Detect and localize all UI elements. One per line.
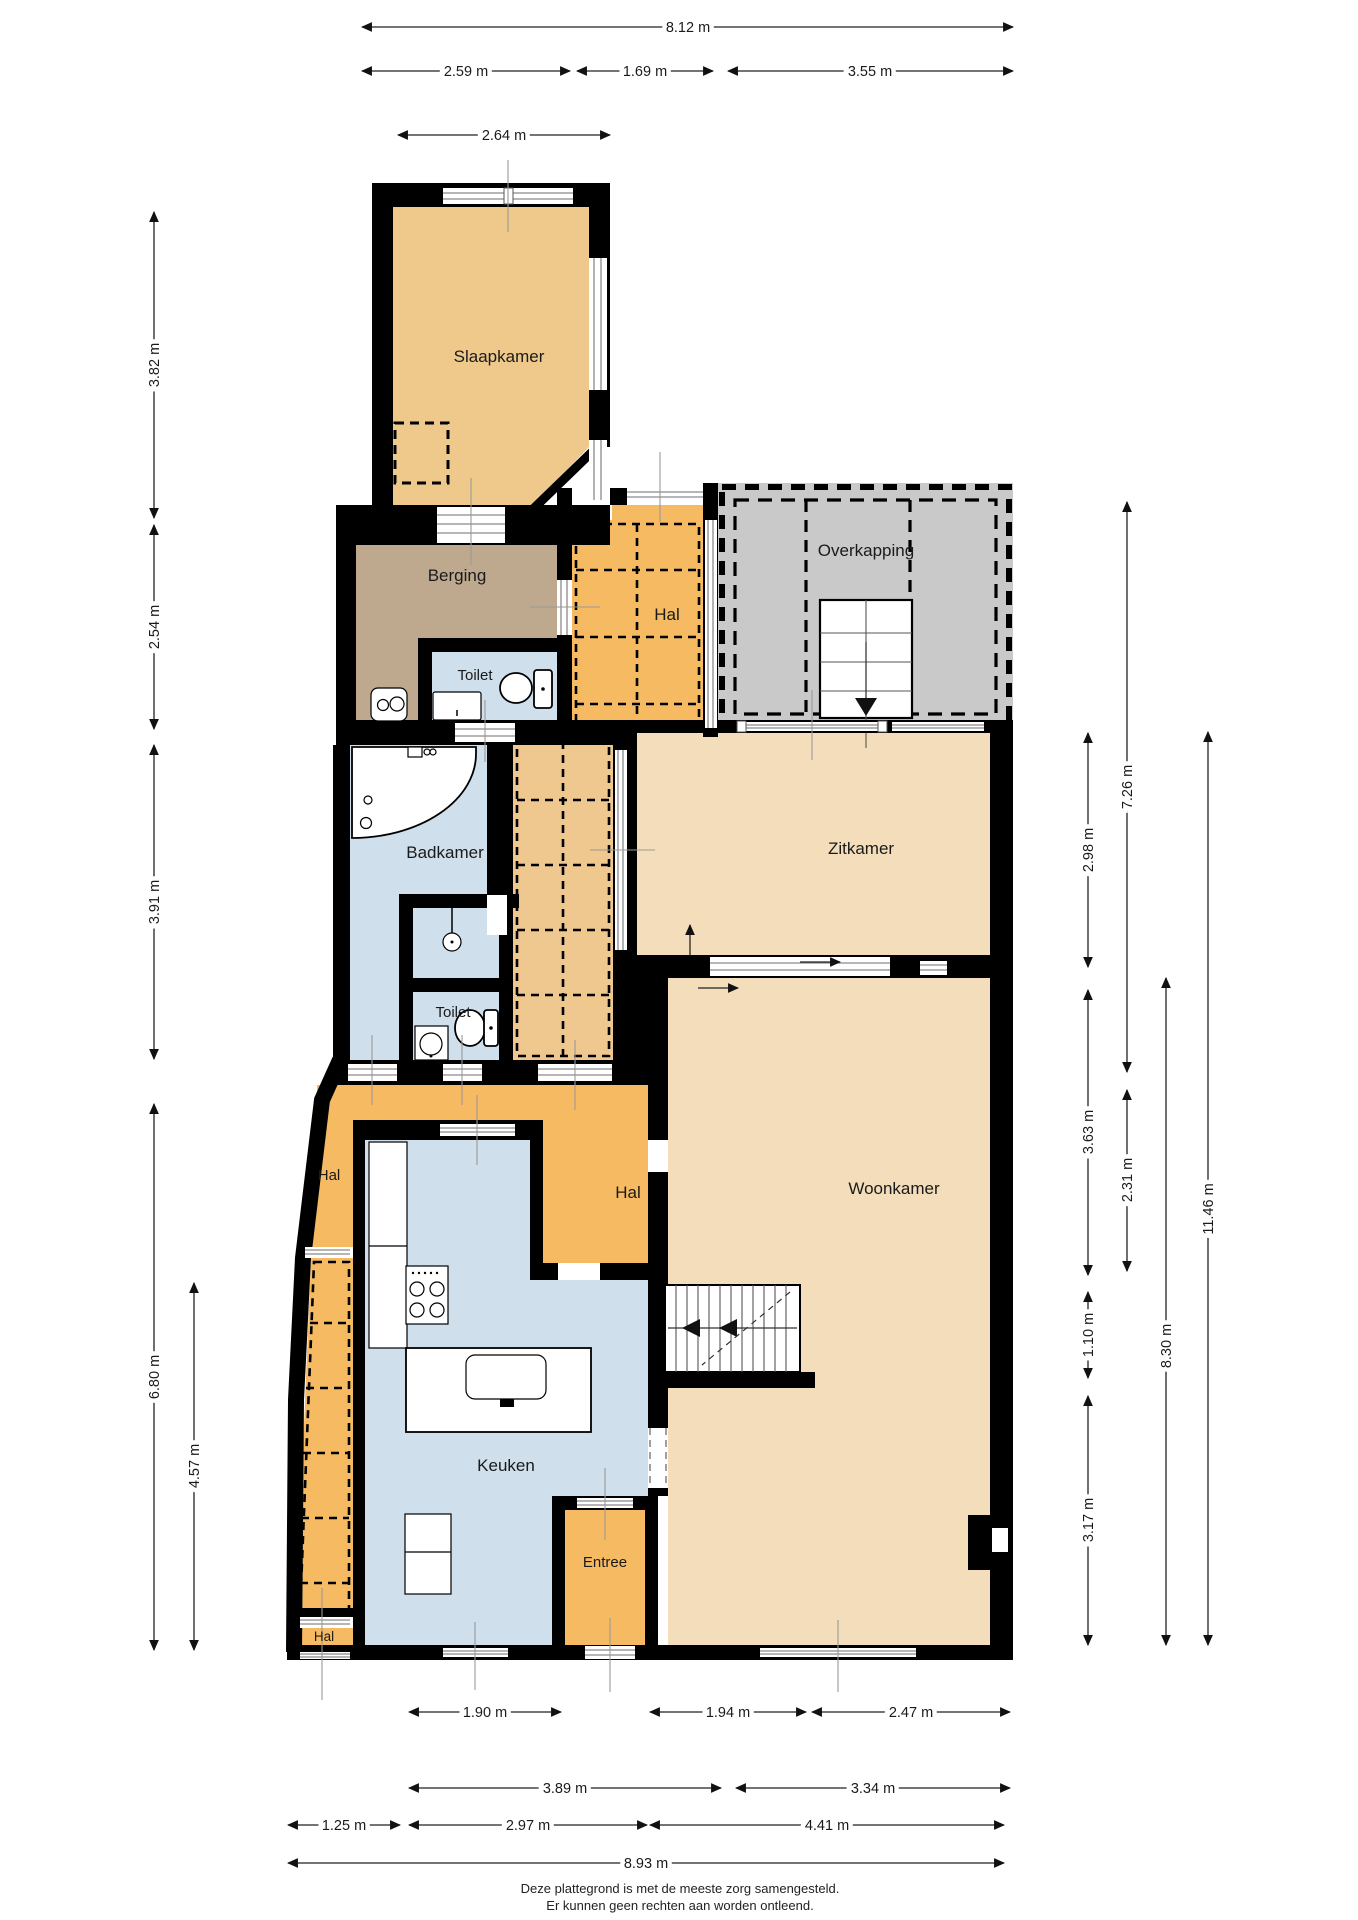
dim-bottom-0: 1.90 m xyxy=(463,1705,507,1721)
room-label-badkamer: Badkamer xyxy=(406,843,484,862)
room-label-toilet-boven: Toilet xyxy=(457,667,493,684)
island-sink xyxy=(466,1355,546,1399)
dim-left-3: 6.80 m xyxy=(147,1355,163,1399)
dim-bottom-3: 3.89 m xyxy=(543,1781,587,1797)
dim-right-6: 8.30 m xyxy=(1159,1324,1175,1368)
room-hal-boven-notch xyxy=(612,505,703,523)
room-hal-midden-a xyxy=(317,1085,650,1120)
dim-left-0: 3.82 m xyxy=(147,343,163,387)
dim-top-3: 3.55 m xyxy=(848,64,892,80)
room-label-toilet-onder: Toilet xyxy=(435,1004,471,1021)
dim-top-4: 2.64 m xyxy=(482,128,526,144)
footer-line-1: Deze plattegrond is met de meeste zorg s… xyxy=(521,1881,840,1896)
dim-right-4: 1.10 m xyxy=(1081,1313,1097,1357)
room-label-hal-midden: Hal xyxy=(615,1183,641,1202)
dim-right-1: 2.98 m xyxy=(1081,828,1097,872)
dim-right-0: 7.26 m xyxy=(1120,765,1136,809)
dim-top-1: 2.59 m xyxy=(444,64,488,80)
dim-right-2: 3.63 m xyxy=(1081,1110,1097,1154)
dim-right-5: 3.17 m xyxy=(1081,1498,1097,1542)
room-label-hal-links: Hal xyxy=(318,1167,341,1184)
dim-bottom-7: 4.41 m xyxy=(805,1818,849,1834)
dim-left-1: 2.54 m xyxy=(147,605,163,649)
dim-bottom-2: 2.47 m xyxy=(889,1705,933,1721)
dim-right-3: 2.31 m xyxy=(1120,1158,1136,1202)
room-label-entree: Entree xyxy=(583,1554,627,1571)
room-label-berging: Berging xyxy=(428,566,487,585)
room-label-slaapkamer: Slaapkamer xyxy=(454,347,545,366)
room-label-hal-onder: Hal xyxy=(314,1629,334,1644)
room-label-overkapping: Overkapping xyxy=(818,541,914,560)
dim-bottom-5: 1.25 m xyxy=(322,1818,366,1834)
dim-bottom-6: 2.97 m xyxy=(506,1818,550,1834)
fridge xyxy=(405,1514,451,1594)
footer-line-2: Er kunnen geen rechten aan worden ontlee… xyxy=(546,1898,813,1913)
room-badkamer-lower xyxy=(350,894,399,1060)
dim-top-total: 8.12 m xyxy=(666,20,710,36)
footer: Deze plattegrond is met de meeste zorg s… xyxy=(521,1881,840,1913)
kitchen-counter xyxy=(369,1142,407,1348)
staircase-down xyxy=(665,1285,800,1372)
dim-bottom-1: 1.94 m xyxy=(706,1705,750,1721)
dim-bottom-4: 3.34 m xyxy=(851,1781,895,1797)
room-label-zitkamer: Zitkamer xyxy=(828,839,894,858)
room-label-hal-boven: Hal xyxy=(654,605,680,624)
floorplan-page: Slaapkamer Berging Toilet Hal Overkappin… xyxy=(0,0,1358,1920)
dim-top-2: 1.69 m xyxy=(623,64,667,80)
room-label-keuken: Keuken xyxy=(477,1456,535,1475)
dim-right-7: 11.46 m xyxy=(1201,1183,1217,1234)
floorplan-drawing: Slaapkamer Berging Toilet Hal Overkappin… xyxy=(0,0,1358,1920)
dim-bottom-8: 8.93 m xyxy=(624,1856,668,1872)
toilet-bowl-top xyxy=(500,673,532,703)
dim-left-4: 4.57 m xyxy=(187,1444,203,1488)
room-zitkamer xyxy=(637,733,990,955)
room-label-woonkamer: Woonkamer xyxy=(848,1179,940,1198)
dim-left-2: 3.91 m xyxy=(147,880,163,924)
